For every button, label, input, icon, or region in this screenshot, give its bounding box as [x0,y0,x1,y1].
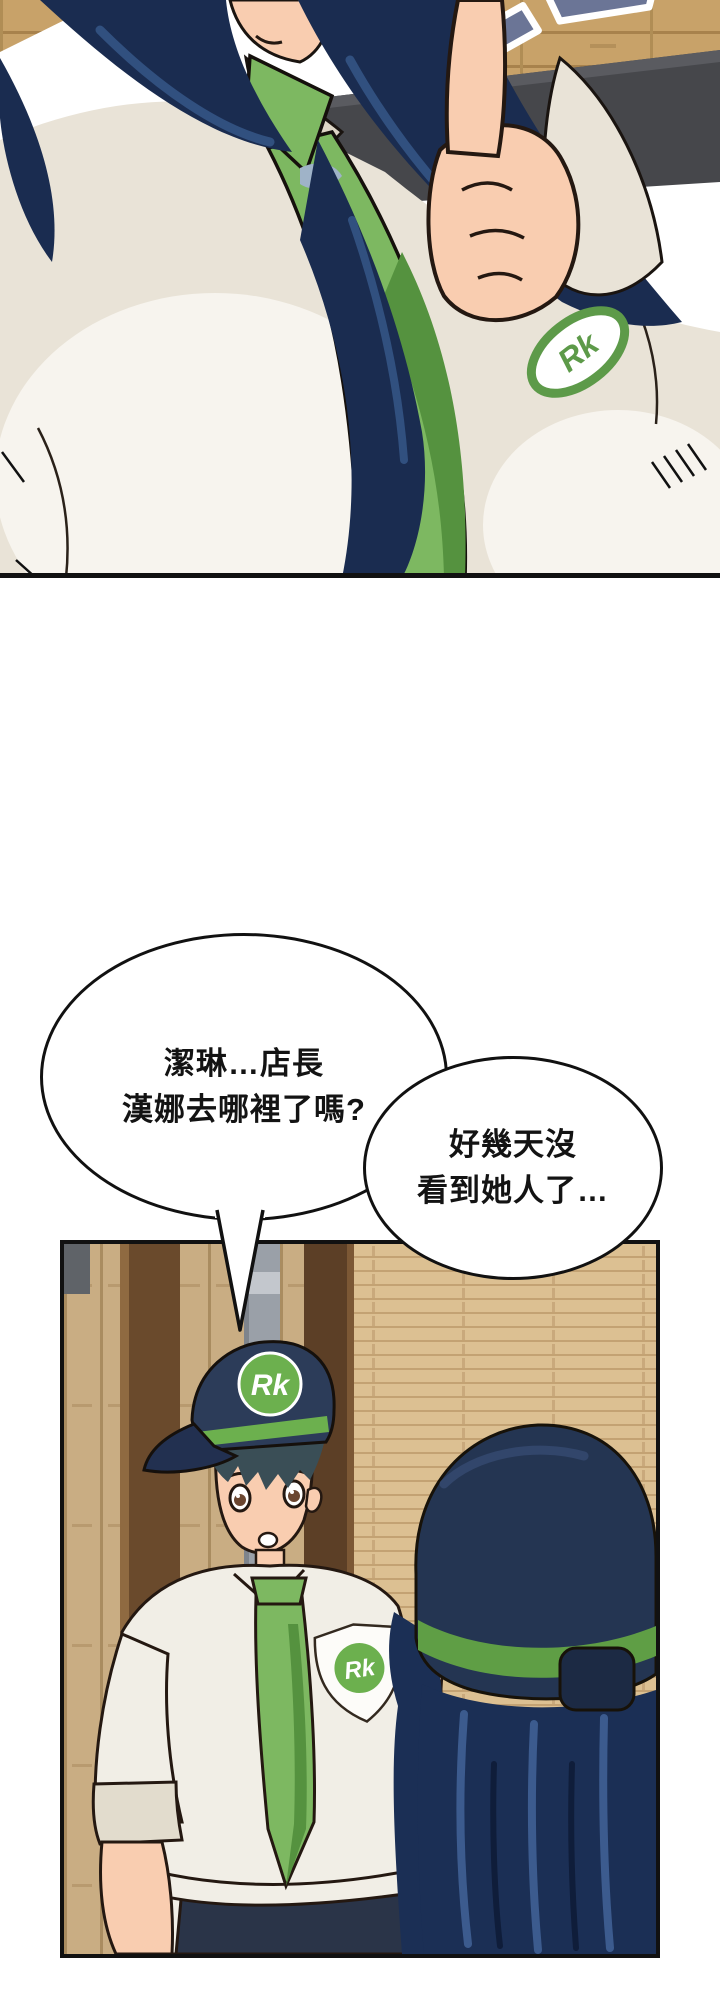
corner-fixture [64,1244,90,1294]
man-forearm [101,1842,173,1954]
man-ear [306,1488,321,1512]
cap-logo-text: Rk [251,1369,291,1402]
rolled-cuff [93,1782,182,1844]
bottom-panel-art: Rk [64,1244,656,1954]
bubble-right-line-1: 好幾天沒 [449,1122,577,1168]
top-panel-art: Rk [0,0,720,578]
chest-badge-text: Rk [343,1654,379,1685]
woman-hat [416,1425,656,1710]
clerk-woman [389,1425,656,1954]
panel-top-closeup: Rk [0,0,720,578]
index-finger [447,0,505,156]
bubble-left-line-1: 潔琳…店長 [164,1041,324,1087]
hat-back-tab [560,1648,634,1710]
speech-bubble-right: 好幾天沒 看到她人了… [363,1056,663,1280]
bubble-right-line-2: 看到她人了… [417,1168,609,1214]
comic-page: Rk 潔琳…店長 漢娜去哪裡了嗎? 好幾天沒 看到她人了… [0,0,720,1992]
bubble-left-line-2: 漢娜去哪裡了嗎? [122,1087,366,1133]
man-mouth [259,1533,277,1547]
panel-bottom-scene: Rk [60,1240,660,1958]
tie-knot [252,1578,306,1604]
panel-border-line [0,573,720,578]
speech-bubble-tail [205,1200,275,1335]
